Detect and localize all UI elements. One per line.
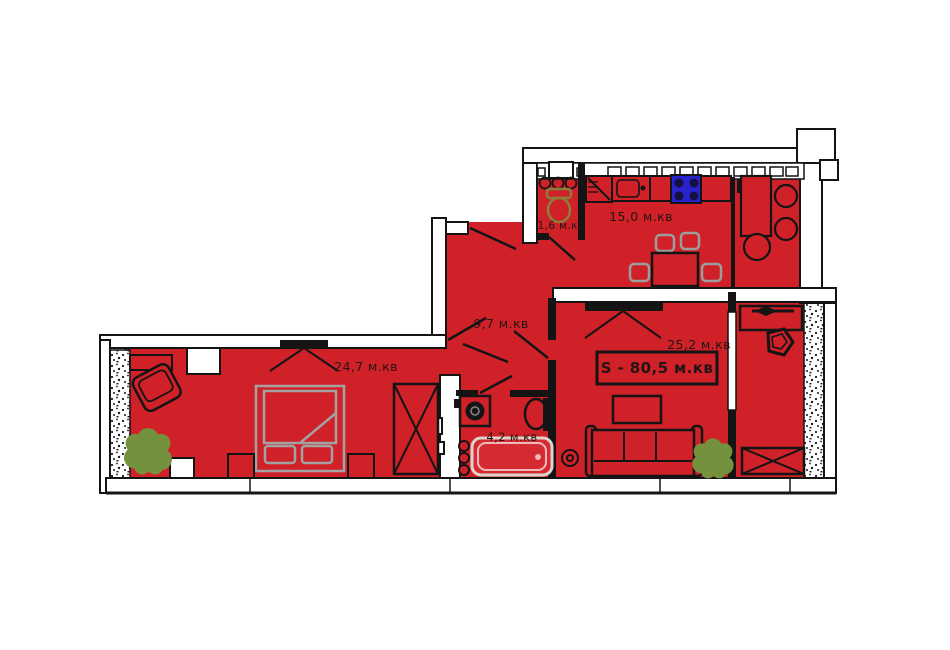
kitchen-bottom-wall (553, 288, 836, 302)
bar-counter-icon (741, 176, 771, 236)
kitchen-area-label: 15,0 м.кв (609, 209, 673, 224)
nightstand-icon (228, 454, 254, 478)
coffee-table-icon (613, 396, 661, 423)
wc-area-label: 1,6 м.кв (537, 220, 584, 232)
nightstand-icon (348, 454, 374, 478)
bathroom-top-wall (510, 390, 548, 397)
bottom-wall-pier (170, 458, 194, 478)
right-wall-lower (824, 303, 836, 478)
bedroom-wall-pier (187, 348, 220, 374)
plant-icon (124, 428, 172, 474)
hallway-area-label: 9,7 м.кв (473, 316, 528, 331)
wc-wall-stub (537, 233, 549, 240)
speaker-icon (562, 450, 578, 466)
balcony-wardrobe-icon (742, 448, 804, 474)
sofa-icon (586, 426, 702, 476)
bed-icon (256, 386, 344, 471)
stool-icon (775, 218, 797, 240)
right-wall-upper (800, 163, 822, 303)
bathroom-sink-icon (525, 398, 549, 431)
bathroom-area-label: 4,2 м.кв (486, 430, 537, 444)
bedroom-top-wall (100, 335, 446, 348)
total-area-label: S - 80,5 м.кв (601, 359, 714, 377)
bedroom-wardrobe-icon (394, 384, 438, 474)
desk-icon (740, 306, 802, 330)
hallway-left-wall (432, 218, 446, 348)
plant-icon (692, 438, 733, 478)
entry-wall-stub (446, 222, 468, 234)
towel-rings-icon (459, 441, 469, 475)
washing-machine-icon (454, 396, 490, 426)
right-wall-step (820, 160, 838, 180)
right-wall-hatch (804, 303, 824, 478)
round-table-icon (744, 234, 770, 260)
bottom-wall (106, 478, 836, 493)
kitchen-left-wall (523, 163, 537, 243)
stool-icon (775, 185, 797, 207)
kitchen-top-wall (523, 148, 805, 163)
balcony-glazed-door (728, 312, 736, 410)
floor-plan-page: 1,6 м.кв 15,0 м.кв 9,7 м.кв 4,2 м.кв 24,… (0, 0, 950, 650)
left-outer-wall (100, 340, 110, 493)
top-right-corner-wall (797, 129, 835, 163)
living-area-label: 25,2 м.кв (667, 337, 731, 352)
living-left-wall (548, 298, 556, 340)
stove-icon (671, 175, 701, 203)
dining-table-icon (652, 253, 698, 286)
bedroom-area-label: 24,7 м.кв (334, 359, 398, 374)
floor-plan-image: 1,6 м.кв 15,0 м.кв 9,7 м.кв 4,2 м.кв 24,… (0, 0, 950, 650)
balcony-wall-upper (728, 292, 736, 312)
